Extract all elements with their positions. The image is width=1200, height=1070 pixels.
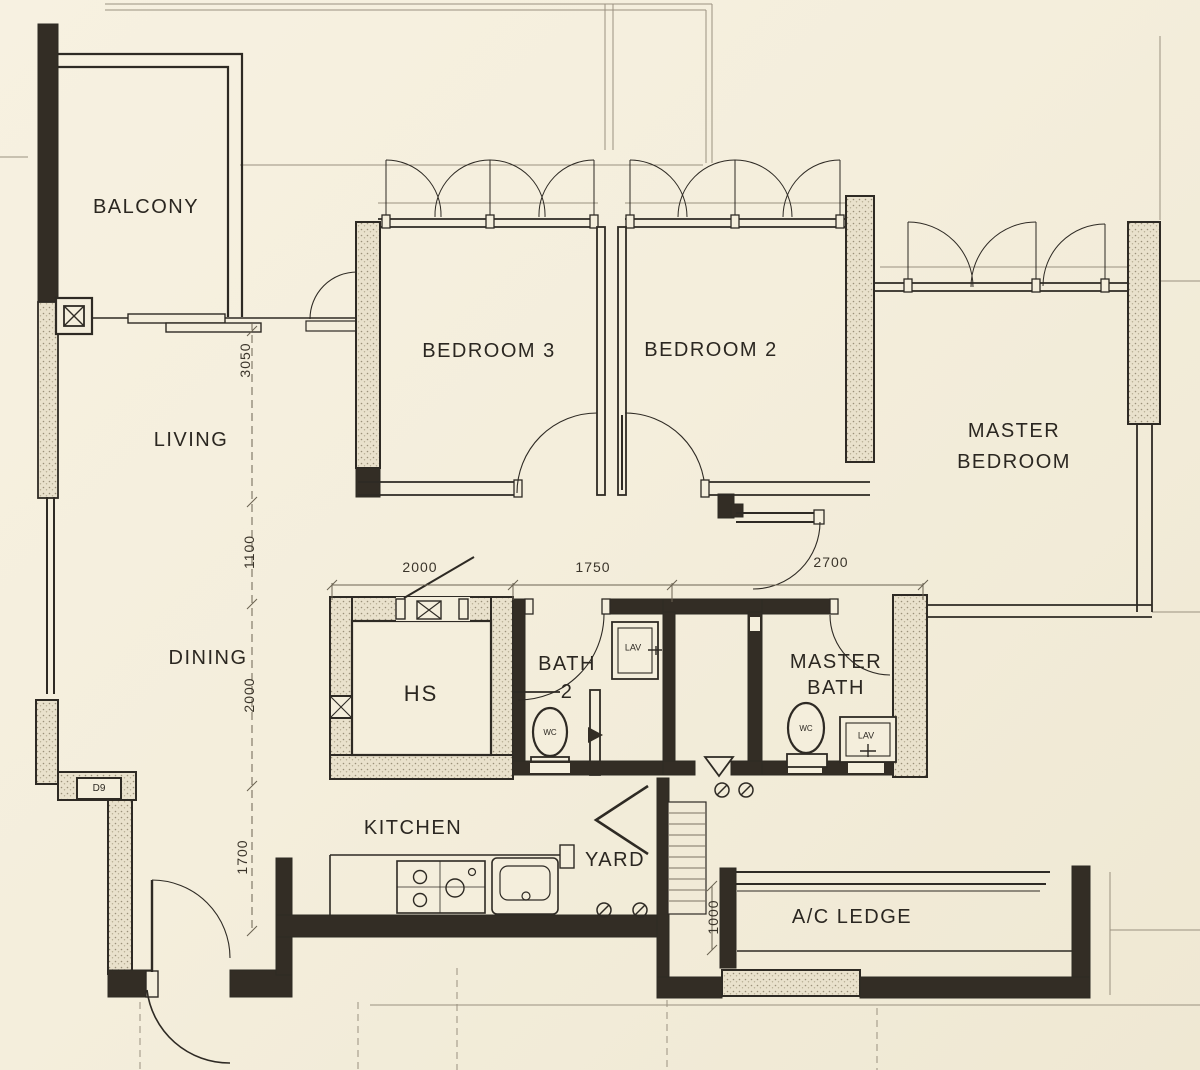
dim-3050: 3050 xyxy=(238,342,252,377)
master-lav-label: LAV xyxy=(858,732,874,741)
floor-trap-triangle-icon xyxy=(705,757,733,776)
construction-lines xyxy=(0,4,1200,1070)
corridor-walls xyxy=(718,494,824,589)
bedroom2-door-swing-arc xyxy=(625,413,705,493)
kitchen-label: KITCHEN xyxy=(364,818,462,838)
entrance-outer-swing-arc xyxy=(147,990,230,1063)
door-tag-label: D9 xyxy=(93,784,106,794)
sliding-door xyxy=(128,314,225,323)
entrance-walls xyxy=(36,700,292,1063)
floor-plan-drawing xyxy=(0,0,1200,1070)
window-mullions xyxy=(904,279,1109,292)
dining-label: DINING xyxy=(169,648,248,668)
bedroom3-door-swing-arc xyxy=(517,413,597,493)
living-label: LIVING xyxy=(154,430,229,450)
dim-1100: 1100 xyxy=(242,535,256,569)
entrance-door-swing-arc xyxy=(152,880,230,958)
living-west-wall xyxy=(47,497,54,694)
stove-icon xyxy=(397,861,485,913)
balcony-walls xyxy=(38,24,358,498)
bath2-lav-label: LAV xyxy=(625,644,641,653)
hs-walls xyxy=(330,557,513,779)
ladder-icon xyxy=(668,802,706,914)
sink-icon xyxy=(492,858,558,914)
master-bath-label-line2: BATH xyxy=(807,678,865,698)
ac-ledge-walls xyxy=(657,866,1090,998)
floor-plan: BALCONY LIVING DINING BEDROOM 3 BEDROOM … xyxy=(0,0,1200,1070)
bath2-label-line1: BATH xyxy=(538,654,596,674)
master-bedroom-label-line1: MASTER xyxy=(968,421,1060,441)
casement-window-arcs xyxy=(386,160,840,217)
bath2-walls xyxy=(513,599,665,775)
yard-label: YARD xyxy=(585,850,645,870)
bath2-wc-label: WC xyxy=(543,729,556,737)
bedroom2-label: BEDROOM 2 xyxy=(644,340,778,360)
hs-label: HS xyxy=(404,683,439,705)
ac-ledge-label: A/C LEDGE xyxy=(792,907,912,927)
bifold-door-icon xyxy=(596,786,648,854)
balcony-label: BALCONY xyxy=(93,197,199,217)
bath2-label-line2: 2 xyxy=(561,682,574,702)
bedroom3-label: BEDROOM 3 xyxy=(422,341,556,361)
master-bath-label-line1: MASTER xyxy=(790,652,882,672)
door-swing-arc xyxy=(310,272,357,319)
bedroom-walls xyxy=(356,160,874,497)
dim-1700: 1700 xyxy=(235,839,249,874)
casement-window-arcs xyxy=(908,222,1105,287)
master-bedroom-door-swing-arc xyxy=(753,522,820,589)
master-wc-label: WC xyxy=(799,725,812,733)
dim-1750: 1750 xyxy=(575,560,610,574)
store-walls xyxy=(663,599,762,776)
window-mullions xyxy=(382,215,844,228)
master-bedroom-label-line2: BEDROOM xyxy=(957,452,1071,472)
dim-1000: 1000 xyxy=(706,899,720,934)
toilet-icon xyxy=(787,703,827,767)
dim-2000-v: 2000 xyxy=(242,677,256,712)
dim-2700: 2700 xyxy=(813,555,848,569)
dim-2000-h: 2000 xyxy=(402,560,437,574)
